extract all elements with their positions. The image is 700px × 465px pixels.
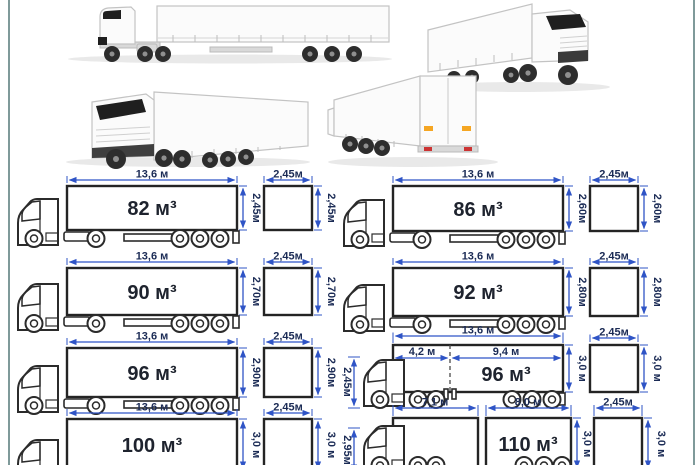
section-width-label: 2,45м [599, 327, 629, 339]
diagram-90m3: 13,6 м 90 м³ 2,70м 2,45м 2,70м [12, 252, 342, 340]
cross-section-square [594, 418, 642, 465]
left-border-line [8, 0, 10, 465]
height-dim-label: 2,90м [250, 358, 262, 388]
total-length-label: 13,6 м [462, 325, 495, 337]
cross-section-square [590, 268, 638, 316]
cross-section-square [590, 186, 638, 231]
diagram-86m3: 13,6 м 86 м³ 2,60м 2,45м 2,60м [338, 170, 668, 256]
rear-length-label: 9,4 м [493, 346, 520, 358]
length-dim-label: 13,6 м [136, 169, 169, 181]
height-dim-label: 3,0 м [581, 431, 593, 458]
truck-photo-rear-view [328, 64, 508, 170]
cross-section-square [264, 348, 312, 397]
length-dim-label: 13,6 м [136, 251, 169, 263]
volume-label: 90 м³ [127, 282, 177, 304]
diagram-82m3: 13,6 м 82 м³ 2,45м 2,45м 2,45м [12, 170, 342, 256]
section-height-label: 3,0 м [651, 355, 663, 382]
section-height-label: 2,60м [651, 194, 663, 224]
volume-label: 96 м³ [127, 363, 177, 385]
rear-length-label: 8,0 м [515, 397, 542, 409]
length-dim-label: 13,6 м [136, 402, 169, 414]
height-dim-label: 3,0 м [576, 355, 588, 382]
truck-photo-side-view [45, 2, 395, 66]
length-dim-label: 13,6 м [462, 169, 495, 181]
cross-section-square [264, 186, 312, 230]
front-length-label: 4,2 м [409, 346, 436, 358]
volume-label: 92 м³ [453, 282, 503, 304]
section-width-label: 2,45м [273, 251, 303, 263]
cab-photo [328, 108, 334, 136]
section-width-label: 2,45м [273, 169, 303, 181]
section-width-label: 2,45м [599, 169, 629, 181]
section-height-label: 3,0 м [655, 431, 667, 458]
cab-height-label: 2,95м [341, 435, 353, 465]
section-width-label: 2,45м [599, 251, 629, 263]
section-width-label: 2,45м [273, 402, 303, 414]
cross-section-square [264, 268, 312, 315]
section-height-label: 2,90м [325, 358, 337, 388]
section-width-label: 2,45м [273, 331, 303, 343]
front-length-label: 7,1 м [422, 397, 449, 409]
infographic-canvas: 13,6 м 82 м³ 2,45м 2,45м 2,45м 13,6 м 86… [0, 0, 700, 465]
cab-height-label: 2,45м [341, 367, 353, 397]
length-dim-label: 13,6 м [462, 251, 495, 263]
height-dim-label: 3,0 м [250, 432, 262, 459]
volume-label: 82 м³ [127, 198, 177, 220]
truck-photo-front-left-view [58, 72, 316, 170]
length-dim-label: 13,6 м [136, 331, 169, 343]
height-dim-label: 2,45м [250, 193, 262, 223]
volume-label: 110 м³ [498, 434, 558, 456]
volume-label: 100 м³ [122, 435, 183, 457]
section-height-label: 2,45м [325, 193, 337, 223]
right-border-line [693, 0, 695, 465]
diagram-110m3: 2,95м 7,1 м 8,0 м 110 м³ 3,0 м 2,45м 3,0… [338, 398, 668, 465]
cross-section-square [590, 345, 638, 392]
volume-label: 86 м³ [453, 199, 503, 221]
volume-label: 96 м³ [481, 364, 531, 386]
height-dim-label: 2,60м [576, 194, 588, 224]
section-height-label: 3,0 м [325, 432, 337, 459]
section-width-label: 2,45м [603, 397, 633, 409]
cross-section-square [264, 419, 312, 465]
height-dim-label: 2,80м [576, 277, 588, 307]
height-dim-label: 2,70м [250, 277, 262, 307]
section-height-label: 2,70м [325, 277, 337, 307]
section-height-label: 2,80м [651, 277, 663, 307]
diagram-100m3: 13,6 м 100 м³ 3,0 м 2,45м 3,0 м [12, 403, 342, 465]
